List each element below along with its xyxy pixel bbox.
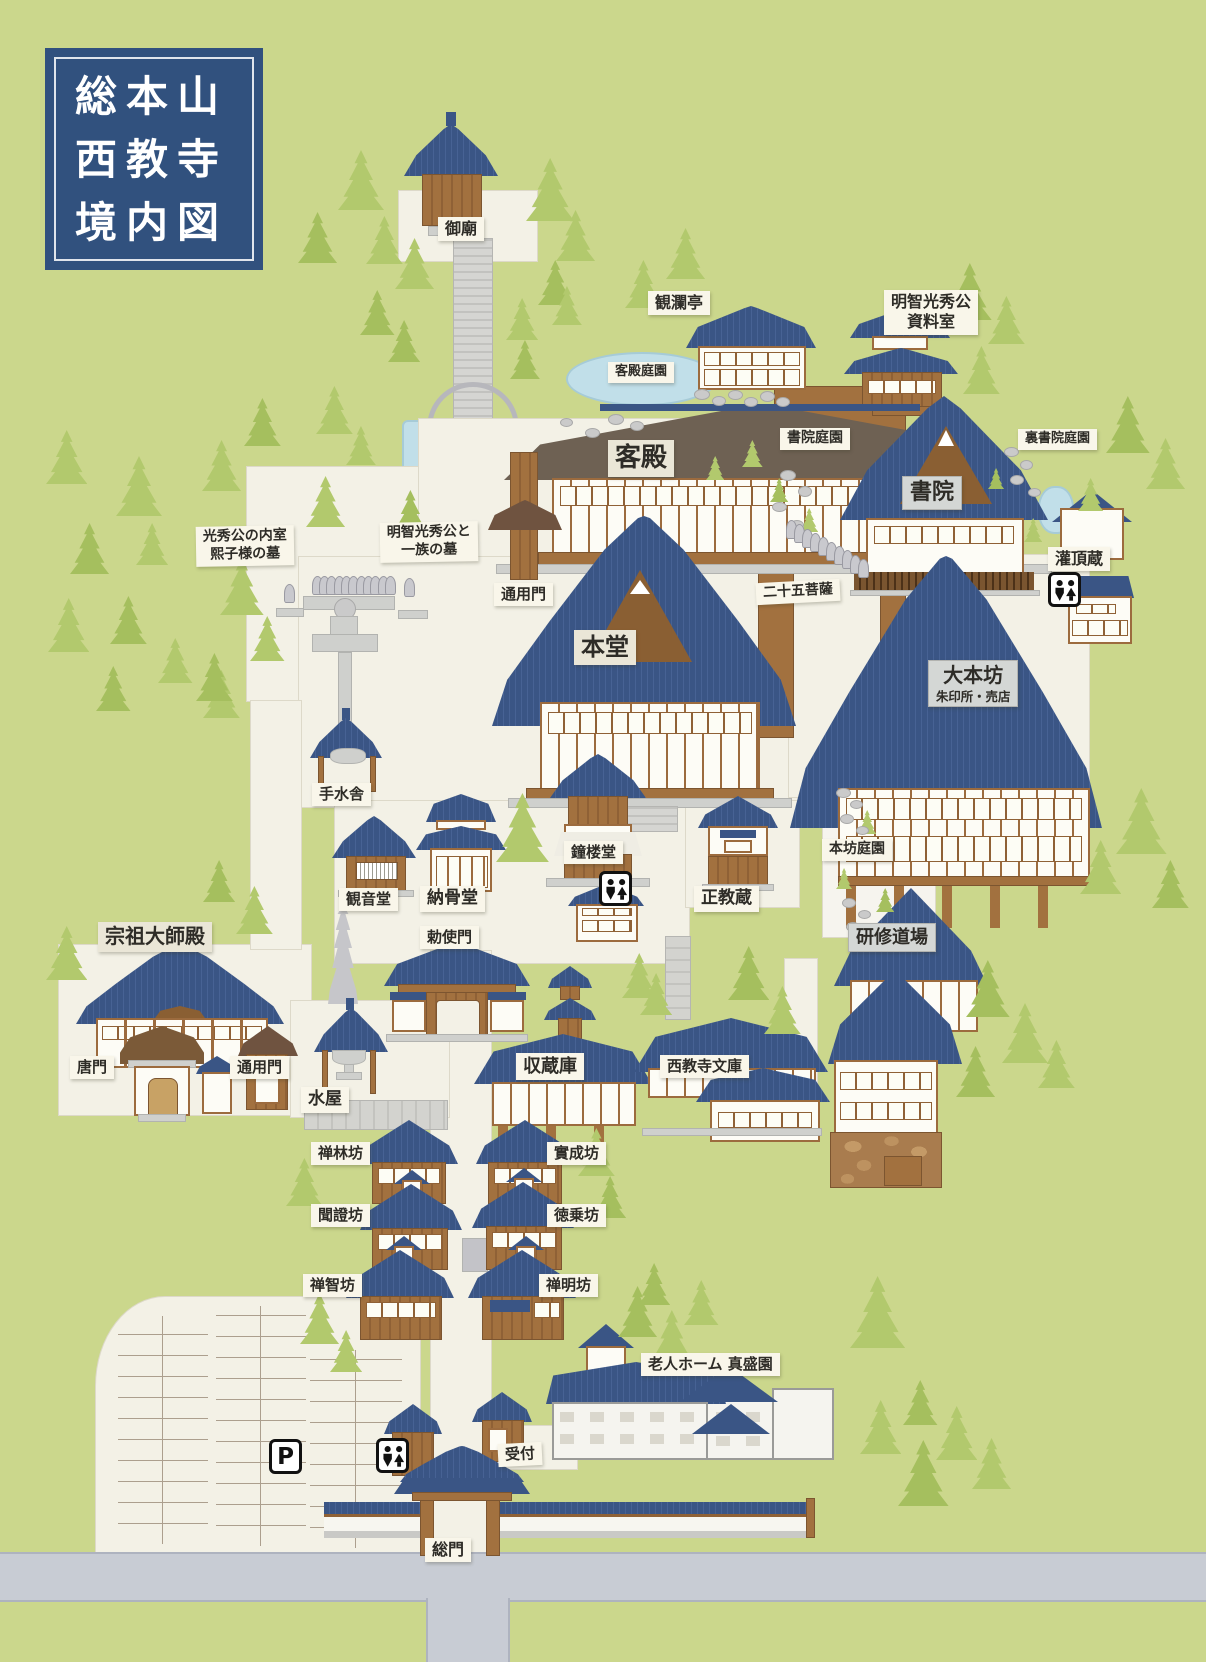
label-shuzoko: 収蔵庫 bbox=[516, 1053, 584, 1080]
chokushimon-cap-right bbox=[488, 992, 526, 1000]
label-kyakuden: 客殿 bbox=[608, 440, 674, 477]
label-daihonbo-sub: 朱印所・売店 bbox=[936, 689, 1010, 705]
chokushimon-opening bbox=[436, 1000, 480, 1036]
temple-map: 総本山 西教寺 境内図 御廟観瀾亭明智光秀公 資料室客殿庭園書院庭園裏書院庭園客… bbox=[0, 0, 1206, 1662]
tokujobo-annex bbox=[462, 1238, 488, 1272]
label-shoin-teien: 書院庭園 bbox=[780, 428, 850, 450]
mizuya-finial bbox=[346, 998, 354, 1010]
tree bbox=[1116, 788, 1167, 854]
tree bbox=[1038, 1040, 1075, 1088]
tree bbox=[1146, 438, 1185, 489]
kenshu-windows-bottom bbox=[840, 1102, 932, 1120]
label-nokotsu-do: 納骨堂 bbox=[420, 886, 485, 912]
shoro-shop-windows-top bbox=[582, 908, 632, 916]
wall-end-post bbox=[806, 1498, 815, 1538]
parking-icon: P bbox=[269, 1439, 302, 1474]
tree bbox=[388, 320, 420, 362]
chokushimon-wall-left bbox=[392, 1000, 426, 1032]
wall-right-base bbox=[500, 1531, 810, 1538]
chozuya-basin bbox=[330, 748, 366, 764]
garden-stone bbox=[585, 428, 600, 438]
stone-statue bbox=[284, 584, 295, 603]
tree bbox=[936, 1406, 977, 1460]
seikyozo-awning bbox=[720, 830, 756, 838]
label-bunko: 西教寺文庫 bbox=[660, 1055, 749, 1078]
kyakuden-ridge bbox=[600, 404, 920, 411]
monument-platform bbox=[312, 634, 378, 652]
tree bbox=[510, 340, 540, 379]
garden-stone bbox=[798, 486, 812, 497]
bunko-base bbox=[642, 1128, 822, 1136]
mizuya-post-right bbox=[370, 1050, 376, 1094]
south-road bbox=[426, 1598, 510, 1662]
label-seikyozo: 正教蔵 bbox=[694, 886, 759, 912]
mizuya-bowl bbox=[332, 1050, 366, 1065]
seikyozo-lower bbox=[708, 856, 768, 886]
stone-statue bbox=[385, 576, 396, 595]
tree bbox=[903, 1380, 938, 1425]
label-shiryoshitsu: 明智光秀公 資料室 bbox=[884, 290, 978, 335]
tree bbox=[203, 860, 235, 902]
wall-left-cap bbox=[324, 1502, 426, 1514]
map-title: 総本山 西教寺 境内図 bbox=[45, 48, 263, 270]
tree bbox=[963, 346, 1000, 394]
label-jitsujobo: 實成坊 bbox=[547, 1142, 606, 1165]
tree bbox=[158, 638, 193, 683]
main-road bbox=[0, 1552, 1206, 1602]
shinseien-body-far-right bbox=[772, 1388, 834, 1460]
title-line-3: 境内図 bbox=[75, 191, 263, 254]
gobyo-finial bbox=[446, 112, 456, 126]
tree bbox=[1078, 478, 1103, 511]
grave-plinth-right bbox=[398, 610, 428, 619]
kenshu-windows-top bbox=[840, 1072, 932, 1090]
label-somon: 総門 bbox=[425, 1538, 471, 1562]
garden-stone bbox=[744, 397, 758, 407]
garden-stone bbox=[836, 788, 851, 798]
chokushimon-base bbox=[386, 1034, 528, 1042]
kannondo-lattice bbox=[356, 862, 398, 880]
label-mitsuhide-haka: 明智光秀公と 一族の墓 bbox=[380, 521, 479, 563]
mizuya-base bbox=[336, 1072, 362, 1080]
kanrantei-windows-top bbox=[704, 352, 800, 366]
daihonbo-beam bbox=[838, 876, 1090, 886]
shoin-windows bbox=[874, 526, 1014, 544]
label-ura-shoin-teien: 裏書院庭園 bbox=[1018, 429, 1097, 450]
label-zenmyobo: 禅明坊 bbox=[539, 1274, 598, 1297]
stone-statue bbox=[858, 559, 869, 578]
label-monshobo: 聞證坊 bbox=[311, 1204, 370, 1227]
label-daihonbo: 大本坊朱印所・売店 bbox=[928, 660, 1018, 707]
tree bbox=[728, 946, 769, 1000]
kanrantei-windows-bottom bbox=[704, 369, 800, 386]
tree bbox=[1106, 396, 1150, 453]
parking-lines-1 bbox=[118, 1316, 208, 1544]
chokushimon-wall-right bbox=[490, 1000, 524, 1032]
shiryoshitsu-mid bbox=[872, 336, 928, 350]
garden-stone bbox=[1020, 460, 1033, 470]
somon-pillar-right bbox=[486, 1500, 500, 1556]
label-kyakuden-teien: 客殿庭園 bbox=[608, 362, 674, 383]
tree bbox=[684, 1280, 719, 1325]
grave-plinth-left bbox=[276, 608, 304, 617]
tree bbox=[244, 398, 281, 446]
label-shoro-do: 鐘楼堂 bbox=[564, 841, 623, 864]
tree bbox=[136, 523, 168, 565]
tree bbox=[850, 1276, 905, 1348]
parking-divider-2 bbox=[260, 1306, 261, 1546]
garden-stone bbox=[560, 418, 573, 427]
label-nijugo-bosatsu: 二十五菩薩 bbox=[755, 579, 840, 605]
daihonbo-windows-top bbox=[846, 798, 1082, 820]
garden-stone bbox=[694, 389, 710, 400]
tree bbox=[70, 523, 109, 574]
label-tokujobo: 徳乗坊 bbox=[547, 1204, 606, 1227]
seikyozo-window bbox=[724, 840, 752, 853]
label-mizuya: 水屋 bbox=[301, 1087, 349, 1113]
tree bbox=[506, 298, 538, 340]
label-hiroko-haka: 光秀公の内室 熙子様の墓 bbox=[196, 525, 295, 567]
label-zenrinbo: 禅林坊 bbox=[311, 1142, 370, 1165]
garden-stone bbox=[728, 390, 743, 400]
zenmyobo-awning bbox=[490, 1300, 530, 1312]
label-kanrantei: 観瀾亭 bbox=[648, 291, 710, 315]
shuzoko-tower-roof-top bbox=[548, 966, 592, 988]
shorodo-upper bbox=[568, 796, 628, 826]
shuzoko-body bbox=[492, 1082, 636, 1126]
tree bbox=[360, 290, 395, 335]
monument-box bbox=[330, 616, 358, 636]
kanjozo-shop-windows-top bbox=[1076, 604, 1116, 614]
tree bbox=[316, 386, 353, 434]
tree bbox=[638, 1263, 670, 1305]
kenshu-door bbox=[884, 1156, 922, 1186]
label-shinseien: 老人ホーム 真盛園 bbox=[641, 1353, 780, 1376]
tree bbox=[286, 1158, 323, 1206]
toilet-icon bbox=[376, 1438, 409, 1473]
garden-stone bbox=[1004, 447, 1019, 457]
shiryoshitsu-windows bbox=[868, 380, 936, 394]
tree bbox=[1002, 1003, 1048, 1063]
shinseien-body-main bbox=[552, 1402, 708, 1460]
shoro-shop-windows bbox=[582, 920, 632, 932]
tree bbox=[48, 598, 89, 652]
karamon-opening bbox=[148, 1078, 178, 1118]
garden-stone bbox=[608, 414, 624, 425]
shuzoko-tower-roof-lower bbox=[544, 998, 596, 1020]
garden-stone bbox=[760, 391, 775, 402]
daishiden-hut-body bbox=[202, 1072, 232, 1114]
label-kenshu-dojo: 研修道場 bbox=[848, 923, 936, 952]
wall-right-cap bbox=[500, 1502, 810, 1514]
garden-stone bbox=[772, 502, 787, 512]
label-shoin: 書院 bbox=[902, 476, 962, 510]
label-zenchibo: 禅智坊 bbox=[303, 1274, 362, 1297]
title-line-1: 総本山 bbox=[75, 65, 263, 128]
garden-stone bbox=[840, 814, 854, 824]
shuzoko-tower-mid bbox=[560, 986, 580, 1000]
zenmyobo-windows bbox=[534, 1302, 560, 1318]
toilet-icon bbox=[1048, 572, 1081, 607]
label-tsuyomon-lower: 通用門 bbox=[230, 1056, 289, 1079]
chokushimon-cap-left bbox=[390, 992, 428, 1000]
tree bbox=[666, 228, 705, 279]
label-chozuya: 手水舎 bbox=[312, 783, 371, 806]
garden-stone bbox=[776, 397, 790, 407]
garden-stone bbox=[712, 396, 726, 406]
bunko-windows bbox=[718, 1112, 812, 1128]
tree bbox=[988, 296, 1025, 344]
toilet-icon bbox=[599, 871, 632, 906]
tree bbox=[898, 1440, 949, 1506]
garden-stone bbox=[630, 421, 644, 431]
kanjozo-shop-windows bbox=[1072, 620, 1128, 636]
garden-stone bbox=[850, 800, 863, 809]
tree bbox=[338, 150, 384, 210]
shorodo-platform bbox=[546, 878, 650, 887]
garden-stone bbox=[842, 898, 856, 908]
east-stone-walk bbox=[665, 936, 691, 1020]
title-line-2: 西教寺 bbox=[75, 128, 263, 191]
tree bbox=[1152, 860, 1189, 908]
garden-stone bbox=[858, 910, 871, 919]
stone-statue bbox=[404, 578, 415, 597]
tree bbox=[116, 456, 162, 516]
garden-stone bbox=[856, 826, 869, 835]
label-chokushimon: 勅使門 bbox=[420, 926, 479, 949]
label-uketsuke: 受付 bbox=[497, 1442, 542, 1467]
parking-divider-1 bbox=[162, 1316, 163, 1544]
shinseien-winstrip-m1 bbox=[560, 1412, 700, 1422]
label-hondo: 本堂 bbox=[574, 630, 636, 665]
zenchibo-windows bbox=[366, 1302, 436, 1318]
gobyo-roof bbox=[404, 124, 498, 176]
parking-lines-2 bbox=[216, 1306, 306, 1546]
tree bbox=[96, 666, 131, 711]
hondo-windows bbox=[548, 712, 752, 734]
karamon-steps bbox=[138, 1114, 186, 1122]
tree bbox=[972, 1438, 1011, 1489]
tree bbox=[46, 430, 87, 484]
garden-stone bbox=[1028, 488, 1041, 497]
tree bbox=[110, 596, 147, 644]
wall-left-base bbox=[324, 1531, 426, 1538]
label-karamon: 唐門 bbox=[70, 1056, 114, 1079]
shinseien-winstrip-m2 bbox=[560, 1434, 700, 1444]
label-honbo-teien: 本坊庭園 bbox=[822, 839, 892, 861]
label-tsuyomon-upper: 通用門 bbox=[494, 583, 553, 606]
label-soso-daishiden: 宗祖大師殿 bbox=[98, 922, 212, 952]
tree bbox=[860, 1400, 901, 1454]
tree bbox=[956, 1046, 995, 1097]
tree bbox=[202, 440, 241, 491]
garden-stone bbox=[780, 470, 796, 481]
label-gobyo: 御廟 bbox=[438, 217, 484, 241]
garden-stone bbox=[1010, 475, 1024, 485]
nokotsudo-panes bbox=[436, 856, 488, 888]
shiryoshitsu-roof-lower bbox=[844, 348, 958, 374]
tree bbox=[298, 212, 337, 263]
label-kannon-do: 観音堂 bbox=[339, 888, 398, 911]
label-kanjozo: 灌頂蔵 bbox=[1048, 547, 1110, 571]
